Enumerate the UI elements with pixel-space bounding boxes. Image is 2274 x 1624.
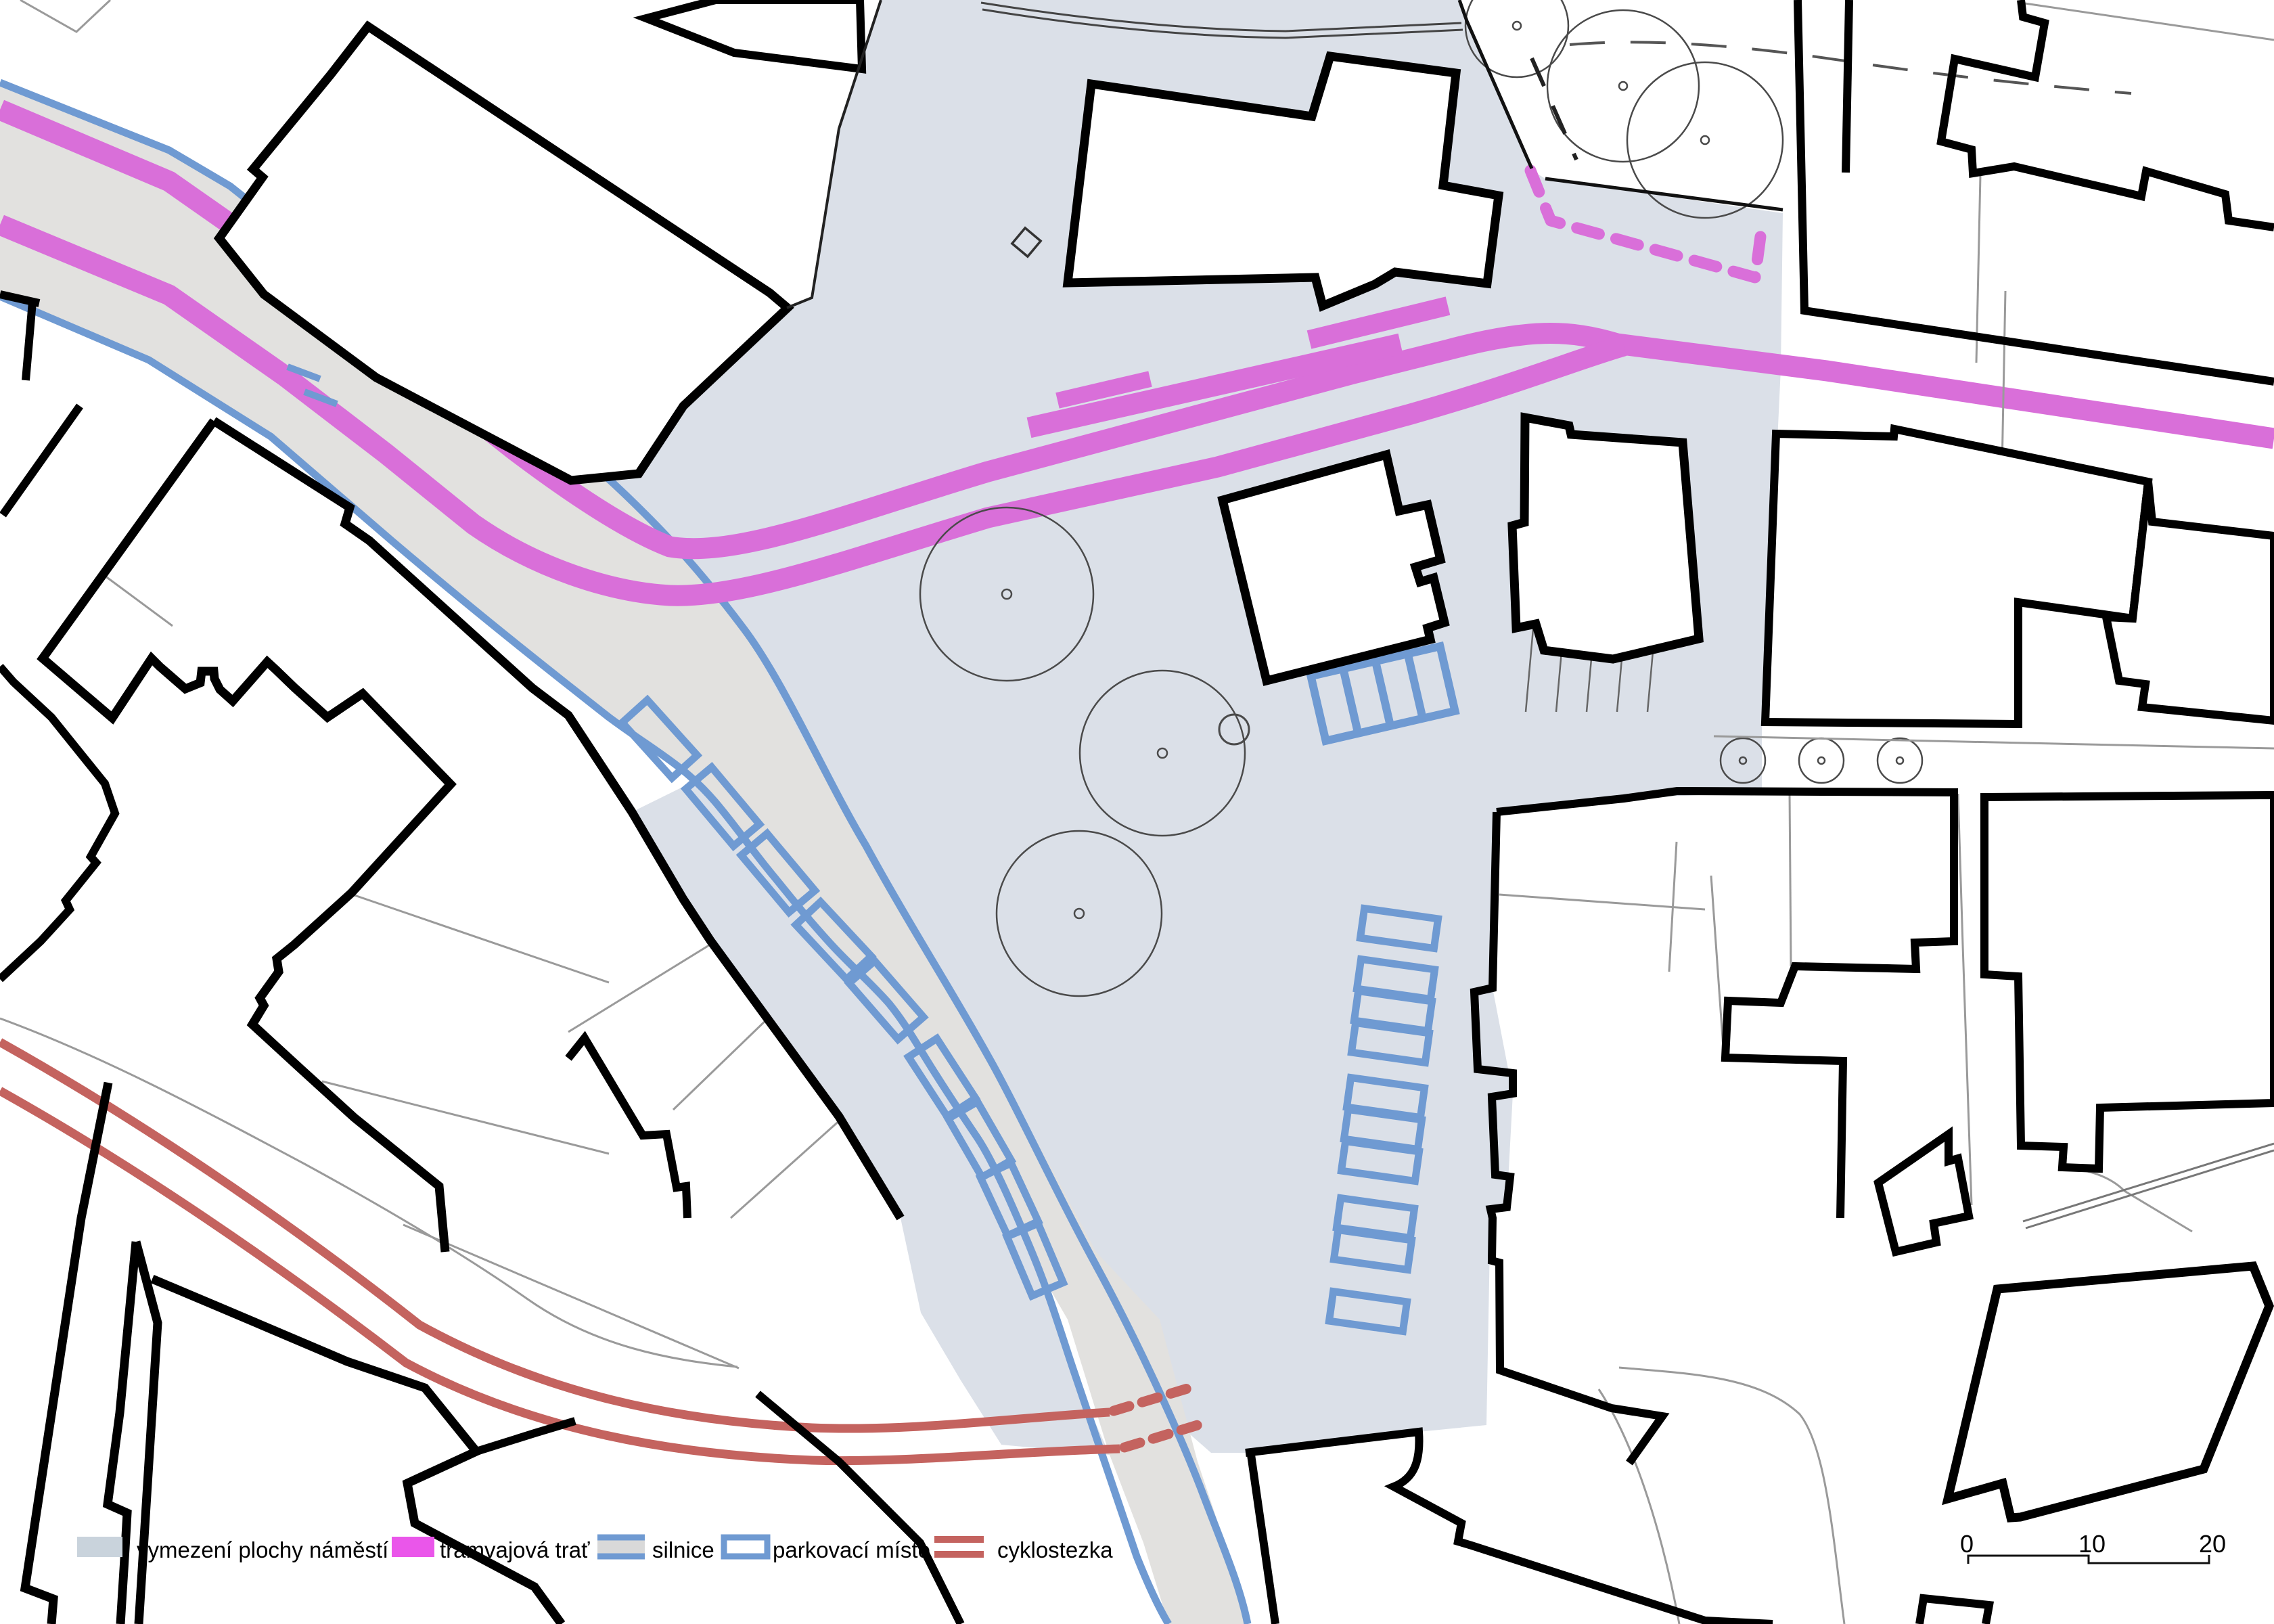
- svg-text:0: 0: [1960, 1530, 1974, 1558]
- svg-text:20: 20: [2199, 1530, 2226, 1558]
- svg-text:cyklostezka: cyklostezka: [997, 1537, 1113, 1562]
- svg-text:silnice: silnice: [652, 1537, 714, 1562]
- svg-text:10: 10: [2078, 1530, 2106, 1558]
- svg-text:tramvajová trať: tramvajová trať: [440, 1537, 590, 1562]
- svg-text:vymezení plochy náměstí: vymezení plochy náměstí: [137, 1537, 388, 1562]
- svg-text:parkovací místo: parkovací místo: [773, 1537, 930, 1562]
